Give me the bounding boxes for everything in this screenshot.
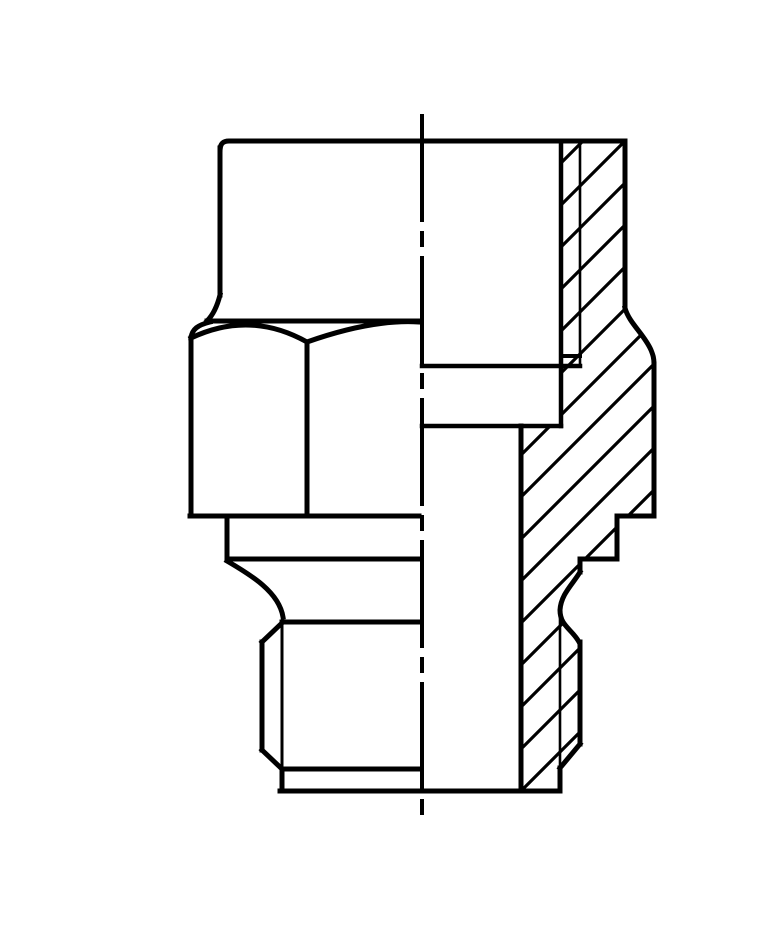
fitting-half-section-drawing: [40, 16, 760, 950]
left-end-chamfer: [262, 750, 282, 769]
outer-wall-flare: [625, 308, 654, 364]
drawing-page: [0, 0, 760, 950]
left-neck-curve: [227, 561, 283, 617]
technical-drawing-figure: [40, 16, 720, 934]
hex-facet-arc-left: [191, 325, 307, 342]
upper-left-flare: [207, 295, 220, 321]
hex-facet-arc-right: [307, 322, 419, 342]
left-thread-lead-chamfer: [262, 622, 283, 642]
